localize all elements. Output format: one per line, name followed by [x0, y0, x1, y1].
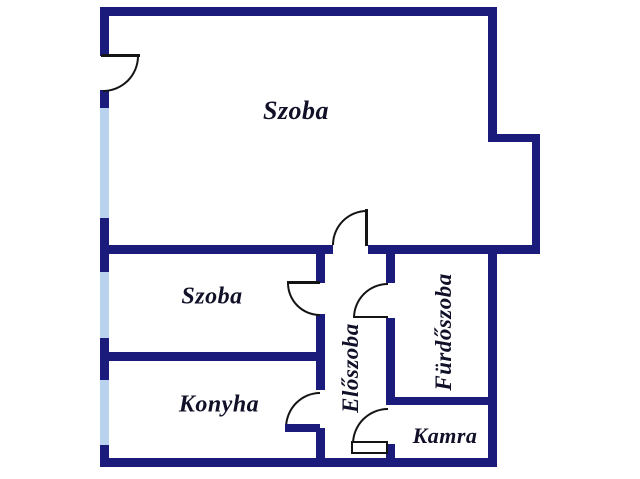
- wall-a-left: [100, 245, 333, 254]
- door-arc-furdoszoba: [353, 283, 388, 318]
- door-leaf-furdoszoba: [353, 316, 388, 318]
- wall-eloszoba-left-1: [316, 245, 325, 283]
- wall-kamra-top: [386, 397, 497, 405]
- floor-plan: Szoba Szoba Konyha Előszoba Fürdőszoba K…: [0, 0, 640, 479]
- wall-left-seg-5: [100, 445, 109, 467]
- room-label-szoba-1: Szoba: [263, 96, 329, 126]
- door-leaf-szoba-1: [365, 209, 368, 246]
- window-1: [100, 108, 109, 218]
- wall-eloszoba-right-2: [386, 318, 395, 405]
- wall-left-seg-1: [100, 7, 109, 56]
- wall-konyha-top: [100, 352, 325, 361]
- wall-right-lower: [488, 254, 497, 467]
- door-leaf-konyha: [285, 424, 320, 432]
- wall-left-seg-2: [100, 90, 109, 108]
- door-leaf-szoba-2: [287, 281, 320, 284]
- window-2: [100, 272, 109, 338]
- door-arc-szoba-2: [287, 283, 320, 316]
- wall-top: [100, 7, 497, 16]
- room-label-kamra: Kamra: [413, 423, 478, 449]
- room-label-konyha: Konyha: [179, 392, 259, 419]
- door-leaf-kamra: [351, 441, 388, 454]
- door-arc-konyha: [285, 392, 320, 428]
- room-label-eloszoba: Előszoba: [338, 323, 364, 413]
- wall-bottom: [100, 458, 497, 467]
- room-label-furdoszoba: Fürdőszoba: [431, 273, 457, 390]
- wall-right-mid: [532, 134, 540, 254]
- door-arc-entry: [103, 56, 139, 92]
- wall-eloszoba-left-2: [316, 314, 325, 390]
- window-3: [100, 380, 109, 445]
- door-arc-kamra: [352, 408, 388, 444]
- door-leaf-entry: [101, 54, 140, 57]
- wall-eloszoba-left-3: [316, 428, 325, 467]
- wall-eloszoba-right-1: [386, 245, 395, 283]
- wall-right-upper: [488, 7, 497, 142]
- door-arc-szoba-1: [332, 210, 367, 245]
- room-label-szoba-2: Szoba: [181, 284, 242, 311]
